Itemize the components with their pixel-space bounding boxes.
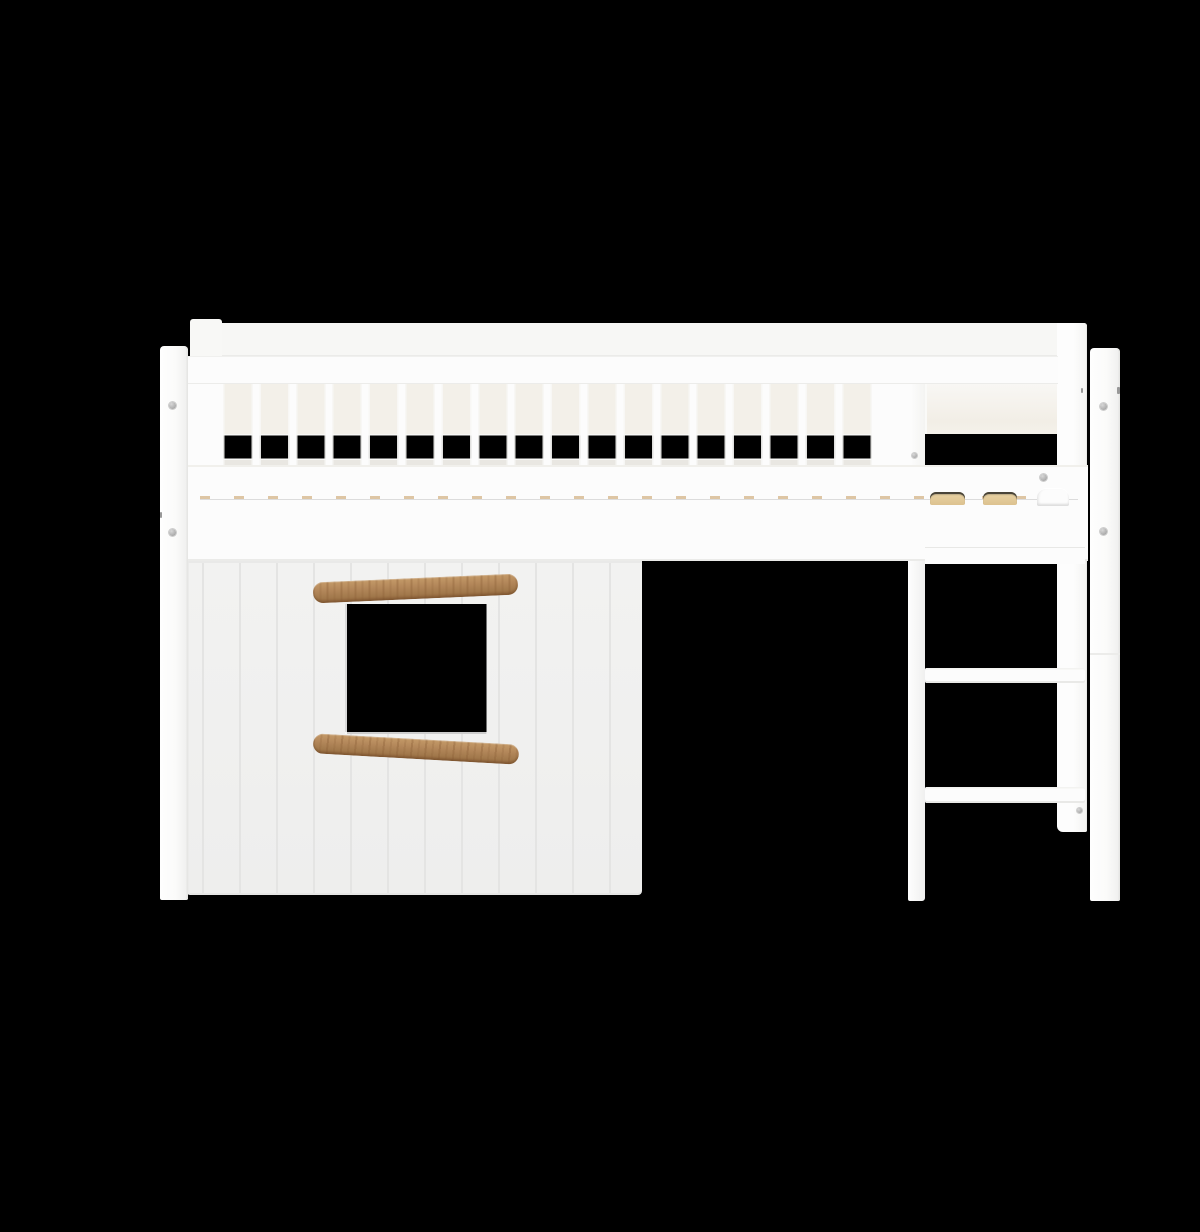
guard-left-stile bbox=[186, 384, 223, 465]
slat-support-curve bbox=[1037, 488, 1069, 506]
guard-top-rail bbox=[186, 356, 1058, 384]
back-guard-rail bbox=[190, 323, 1087, 356]
fitting-mark bbox=[160, 512, 162, 518]
guard-end-stile bbox=[877, 384, 925, 465]
front-left-post bbox=[160, 346, 188, 900]
post-joint-line bbox=[1090, 653, 1120, 655]
ladder-rung-bottom bbox=[925, 787, 1085, 803]
ladder-left-stringer bbox=[908, 561, 925, 901]
bolt-cap bbox=[1100, 528, 1107, 535]
loft-bed bbox=[40, 16, 1200, 1216]
mattress-slat-end bbox=[930, 492, 965, 505]
bolt-cap bbox=[1040, 474, 1047, 481]
fitting-mark bbox=[1081, 388, 1083, 393]
fitting-mark bbox=[1117, 387, 1120, 394]
bolt-cap bbox=[912, 453, 917, 458]
ladder-rung-middle bbox=[925, 668, 1085, 683]
guard-solid-panel bbox=[925, 384, 1057, 434]
front-right-post bbox=[1090, 348, 1120, 901]
bolt-cap bbox=[169, 402, 176, 409]
product-photo-stage: Product photo of a white mid-sleeper lof… bbox=[40, 16, 1200, 1216]
bolt-cap bbox=[1077, 808, 1082, 813]
bolt-cap bbox=[1100, 403, 1107, 410]
mattress-slat-end bbox=[983, 492, 1017, 505]
guard-slat-zone bbox=[223, 384, 877, 465]
ladder-rung-top bbox=[925, 547, 1085, 564]
panel-window-opening bbox=[345, 604, 487, 734]
back-left-post-cap bbox=[190, 319, 222, 356]
end-panel-ladder-right-stringer bbox=[1057, 323, 1087, 832]
bolt-cap bbox=[169, 529, 176, 536]
